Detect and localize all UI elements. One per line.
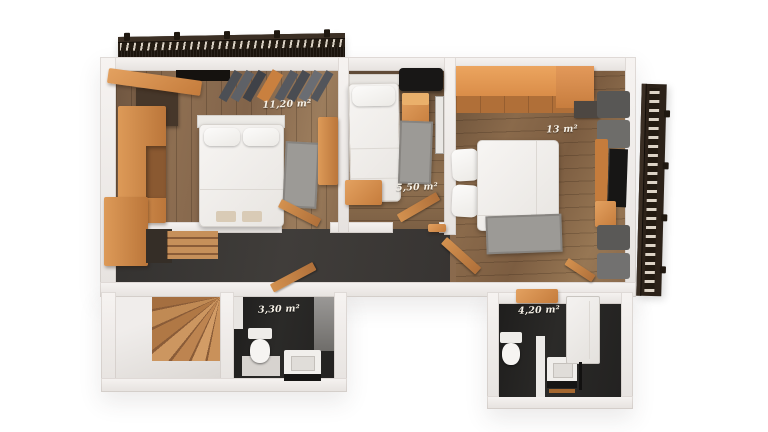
toilet-tank xyxy=(248,328,272,339)
rug xyxy=(282,141,319,209)
sink-basin xyxy=(291,356,315,371)
double-bed xyxy=(199,124,284,227)
balcony-post xyxy=(663,162,669,169)
sink-basin xyxy=(553,363,573,378)
cushion xyxy=(597,91,630,118)
sink-base-wood xyxy=(549,389,575,393)
balcony-post xyxy=(661,214,667,221)
foot-cushion xyxy=(242,211,262,222)
cushion xyxy=(597,225,630,250)
balcony-post xyxy=(224,31,230,39)
area-label-bedroom-right: 13 m² xyxy=(534,123,590,136)
rug xyxy=(485,214,562,255)
area-label-bathroom-right: 4,20 m² xyxy=(510,304,568,317)
low-table xyxy=(595,201,616,227)
balcony-railing-right xyxy=(636,84,667,297)
tv-panel xyxy=(607,149,628,208)
area-label-bathroom-left: 3,30 m² xyxy=(250,303,308,316)
pillow xyxy=(352,86,395,107)
wall-bath-left-right xyxy=(334,292,347,392)
balcony-post xyxy=(664,110,670,117)
balcony-post xyxy=(274,30,280,38)
shower-pole xyxy=(579,362,582,390)
wall-shelf-black xyxy=(399,68,443,91)
toilet-tank xyxy=(500,332,522,343)
lounge-seat-bottom xyxy=(597,225,630,279)
sink-vanity xyxy=(284,350,321,376)
wall-stair-bath-divider xyxy=(220,292,234,392)
pillow xyxy=(243,128,279,146)
balcony-post xyxy=(660,266,666,273)
wall-bath-right-left xyxy=(487,292,499,409)
desk xyxy=(595,139,608,202)
hall-cabinet xyxy=(104,197,148,266)
sink-counter-dark xyxy=(547,381,577,388)
balcony-post xyxy=(174,32,180,40)
mirror xyxy=(435,96,444,154)
rug xyxy=(398,120,433,184)
wardrobe-notch xyxy=(146,146,166,198)
balcony-post xyxy=(324,29,330,37)
cushion xyxy=(597,253,630,279)
pillow xyxy=(451,148,480,181)
wall-bath-right-top xyxy=(487,292,633,304)
duvet-fold xyxy=(200,189,283,190)
pillow xyxy=(451,184,480,217)
wall-stairwell-left xyxy=(101,292,116,392)
gray-cabinet xyxy=(574,101,599,118)
floor-plan-render: 11,20 m² 5,50 m² 13 m² 3,30 m² 4,20 m² xyxy=(0,0,768,432)
door-threshold-plank xyxy=(428,224,446,232)
staircase-winder xyxy=(152,297,220,361)
duvet-fold xyxy=(350,148,399,150)
area-label-small-room: 5,50 m² xyxy=(388,181,446,194)
toilet-bowl xyxy=(250,339,270,363)
toilet-bowl xyxy=(502,343,520,365)
foot-cushion xyxy=(216,211,236,222)
nightstand-top xyxy=(402,93,429,105)
pillow xyxy=(204,128,240,146)
shower-glass-line xyxy=(589,301,590,359)
bath-wall-stub xyxy=(536,336,545,397)
door-header xyxy=(516,289,558,303)
sink-counter-dark xyxy=(284,374,321,381)
balcony-right-balusters xyxy=(644,88,659,292)
stair-upper-steps xyxy=(167,231,218,259)
wall-room1-hall-b xyxy=(330,222,339,233)
shower-column xyxy=(566,296,600,364)
bath-wall-pillar xyxy=(234,297,243,329)
bench xyxy=(318,117,338,185)
low-cabinet xyxy=(345,180,382,205)
bath-gray-panel xyxy=(314,297,334,351)
bed-pillow-stack xyxy=(452,149,479,217)
wall-bath-right-bottom xyxy=(487,396,633,409)
wall-bath-right-right xyxy=(621,292,633,409)
balcony-post xyxy=(124,33,130,41)
wall-room2-hall-a xyxy=(348,222,393,233)
wall-room1-room2 xyxy=(338,57,349,233)
